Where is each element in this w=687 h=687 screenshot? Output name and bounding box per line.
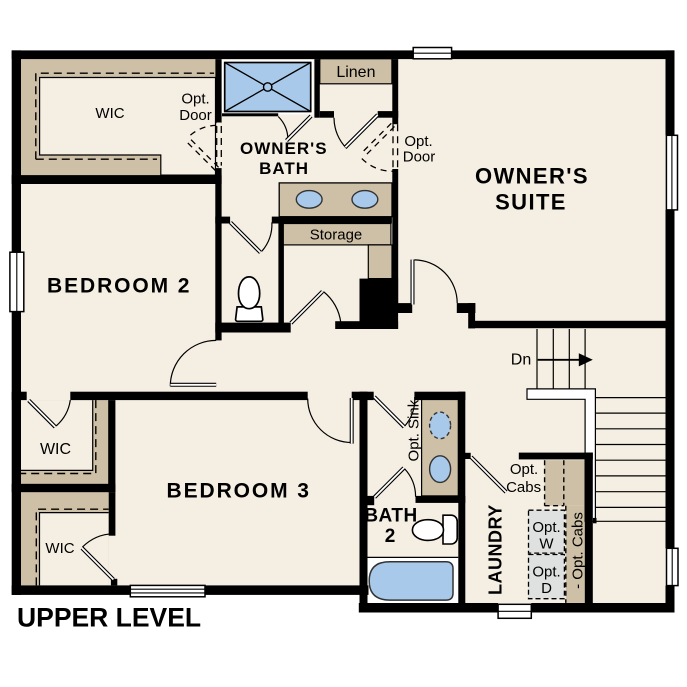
svg-text:Cabs: Cabs <box>506 479 541 496</box>
svg-text:LAUNDRY: LAUNDRY <box>486 504 506 595</box>
svg-text:Door: Door <box>403 148 436 165</box>
svg-text:BATH: BATH <box>259 159 309 178</box>
svg-text:Storage: Storage <box>310 227 363 244</box>
svg-text:2: 2 <box>385 526 396 547</box>
svg-text:Opt.: Opt. <box>532 564 560 581</box>
svg-text:Dn: Dn <box>511 351 531 368</box>
svg-text:OWNER'S: OWNER'S <box>475 164 589 189</box>
svg-text:SUITE: SUITE <box>495 190 567 215</box>
svg-text:BEDROOM 3: BEDROOM 3 <box>167 479 311 502</box>
svg-text:W: W <box>539 536 554 553</box>
svg-text:UPPER LEVEL: UPPER LEVEL <box>17 603 201 633</box>
svg-text:Opt.: Opt. <box>510 461 538 478</box>
svg-text:D: D <box>541 580 552 597</box>
svg-text:WIC: WIC <box>95 105 124 122</box>
svg-text:Linen: Linen <box>336 64 375 81</box>
svg-text:BATH: BATH <box>364 506 417 527</box>
svg-text:OWNER'S: OWNER'S <box>240 139 328 158</box>
svg-text:BEDROOM 2: BEDROOM 2 <box>47 275 191 298</box>
svg-text:Opt.: Opt. <box>181 91 209 108</box>
svg-text:Opt.: Opt. <box>532 519 560 536</box>
svg-text:WIC: WIC <box>40 441 71 458</box>
svg-text:Door: Door <box>179 107 212 124</box>
svg-text:- Opt. Cabs: - Opt. Cabs <box>570 512 587 589</box>
svg-text:WIC: WIC <box>45 540 74 557</box>
